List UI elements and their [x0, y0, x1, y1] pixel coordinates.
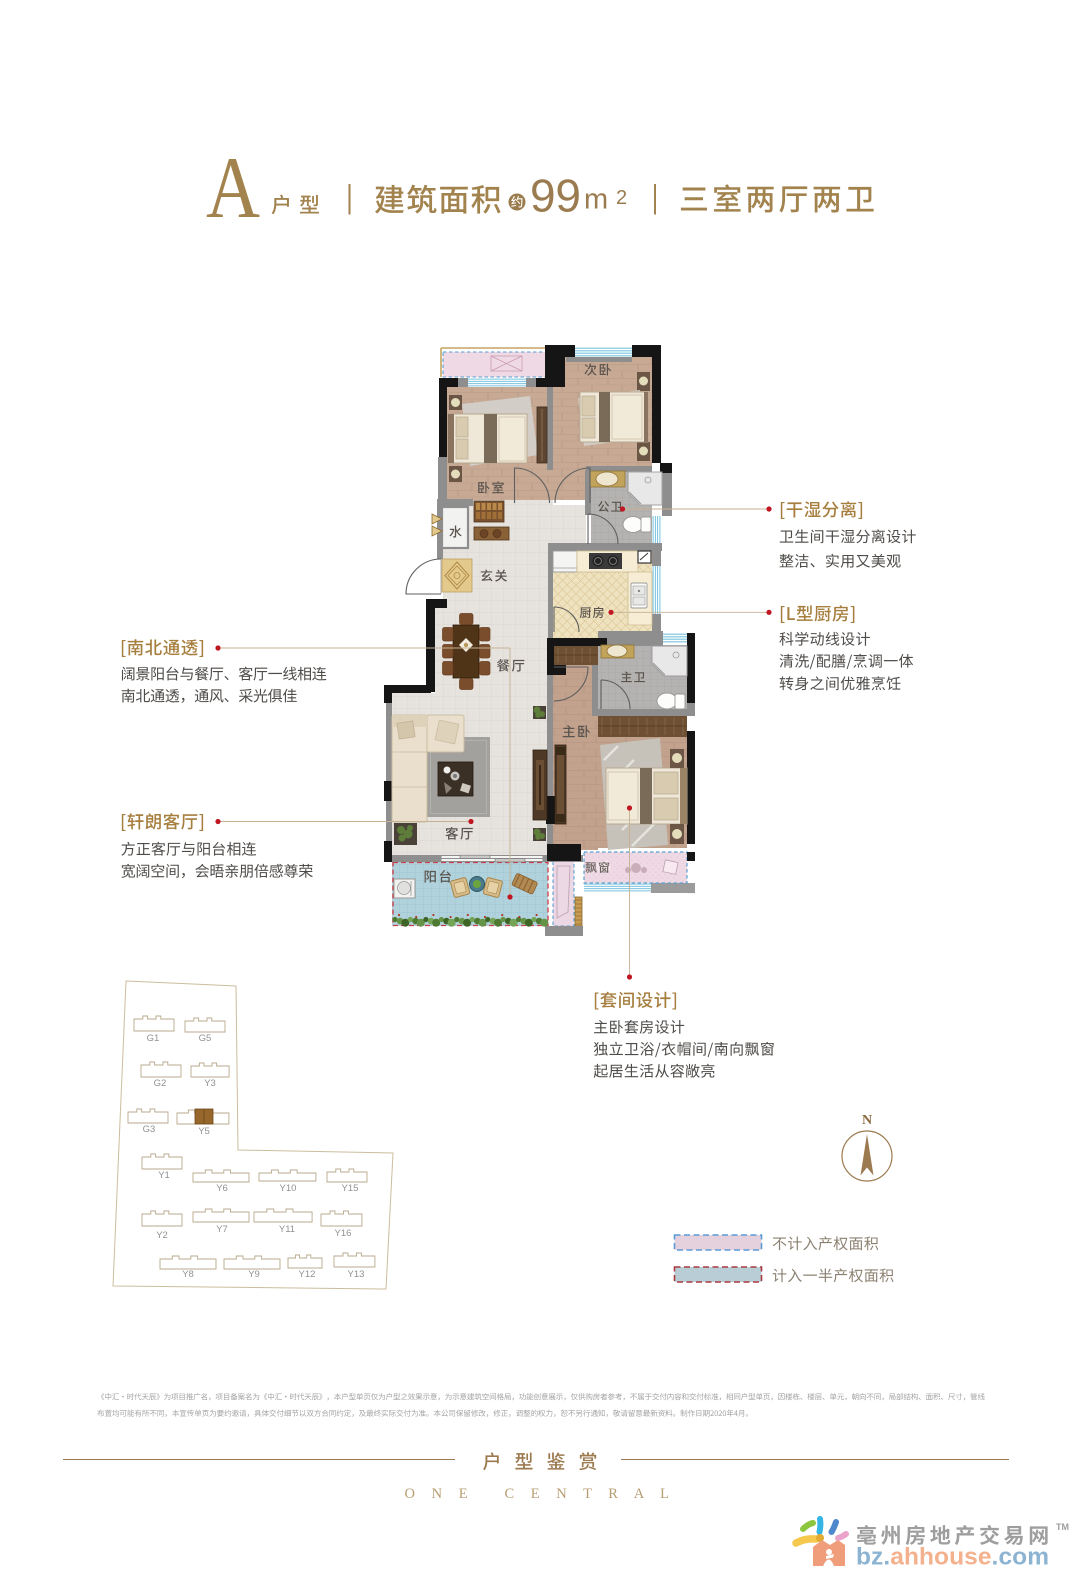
svg-text:TM: TM	[1056, 1522, 1069, 1532]
svg-text:m: m	[584, 184, 608, 216]
svg-text:bz.ahhouse.com: bz.ahhouse.com	[856, 1544, 1049, 1571]
svg-text:N: N	[862, 1113, 872, 1128]
svg-text:Y2: Y2	[156, 1230, 168, 1241]
svg-text:99: 99	[530, 170, 580, 222]
svg-text:G1: G1	[147, 1033, 160, 1044]
svg-text:Y6: Y6	[216, 1183, 228, 1194]
svg-text:G3: G3	[143, 1124, 156, 1135]
svg-text:2: 2	[616, 187, 627, 209]
svg-text:Y8: Y8	[182, 1269, 194, 1280]
svg-text:Y12: Y12	[299, 1269, 316, 1280]
svg-text:Y5: Y5	[198, 1126, 210, 1137]
svg-text:Y13: Y13	[348, 1269, 365, 1280]
svg-text:G2: G2	[154, 1078, 167, 1089]
svg-text:G5: G5	[199, 1033, 212, 1044]
svg-text:Y9: Y9	[248, 1269, 260, 1280]
svg-text:Y1: Y1	[158, 1170, 170, 1181]
svg-text:Y10: Y10	[280, 1183, 297, 1194]
svg-text:Y16: Y16	[335, 1228, 352, 1239]
svg-text:Y3: Y3	[204, 1078, 216, 1089]
svg-text:A: A	[206, 140, 260, 237]
svg-text:Y11: Y11	[279, 1224, 295, 1235]
svg-text:Y7: Y7	[216, 1224, 228, 1235]
svg-text:Y15: Y15	[342, 1183, 359, 1194]
svg-text:O N E C E N T R A L: O N E C E N T R A L	[405, 1486, 676, 1502]
